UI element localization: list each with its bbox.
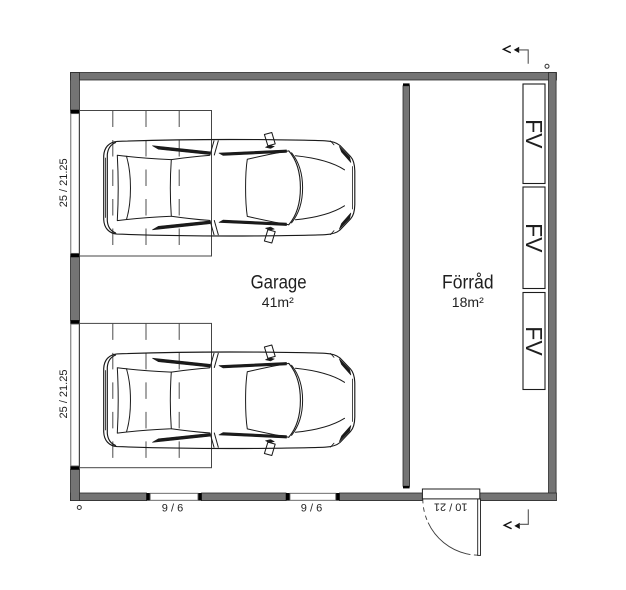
svg-text:Förråd: Förråd bbox=[442, 273, 494, 294]
svg-text:Garage: Garage bbox=[251, 273, 307, 294]
svg-text:10 / 21: 10 / 21 bbox=[434, 500, 468, 512]
svg-text:9 / 6: 9 / 6 bbox=[301, 503, 322, 515]
svg-text:25 / 21.25: 25 / 21.25 bbox=[58, 370, 70, 419]
svg-text:FV: FV bbox=[521, 326, 547, 356]
svg-text:FV: FV bbox=[521, 223, 547, 253]
svg-text:18m²: 18m² bbox=[452, 294, 484, 310]
svg-text:41m²: 41m² bbox=[262, 294, 294, 310]
svg-text:25 / 21.25: 25 / 21.25 bbox=[58, 158, 70, 207]
svg-text:9 / 6: 9 / 6 bbox=[162, 503, 183, 515]
svg-text:FV: FV bbox=[521, 119, 547, 149]
